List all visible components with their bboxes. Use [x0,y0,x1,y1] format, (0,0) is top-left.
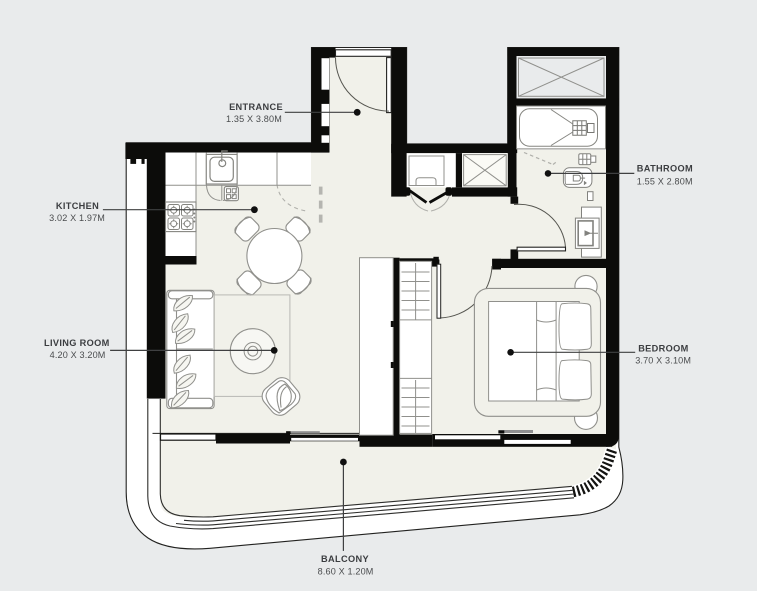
svg-text:1.35 X 3.80M: 1.35 X 3.80M [226,114,282,124]
svg-text:KITCHEN: KITCHEN [56,201,99,211]
svg-text:3.70 X 3.10M: 3.70 X 3.10M [635,355,691,365]
svg-text:8.60 X 1.20M: 8.60 X 1.20M [318,567,374,577]
svg-text:4.20 X 3.20M: 4.20 X 3.20M [50,350,106,360]
svg-text:ENTRANCE: ENTRANCE [229,102,283,112]
svg-text:LIVING ROOM: LIVING ROOM [44,338,110,348]
svg-text:3.02 X 1.97M: 3.02 X 1.97M [49,213,105,223]
svg-text:1.55 X 2.80M: 1.55 X 2.80M [637,176,693,186]
svg-text:BEDROOM: BEDROOM [638,343,688,353]
svg-text:BALCONY: BALCONY [321,554,369,564]
svg-text:BATHROOM: BATHROOM [637,164,693,174]
